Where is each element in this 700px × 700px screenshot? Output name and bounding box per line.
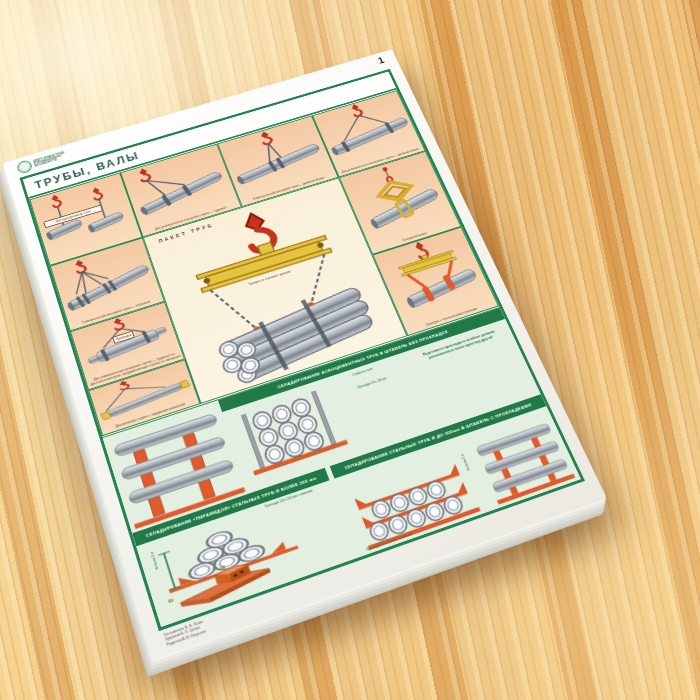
crane-hook-icon [260,131,273,145]
crane-hook-icon [350,104,363,118]
page-number: 1 [376,55,385,65]
crane-hook-icon [74,259,86,273]
crane-hook-icon [50,194,61,208]
crane-hook-icon [92,187,103,201]
crane-hook-icon [113,318,125,331]
publisher-emblem-icon [16,159,33,174]
crane-hook-icon [139,168,152,182]
